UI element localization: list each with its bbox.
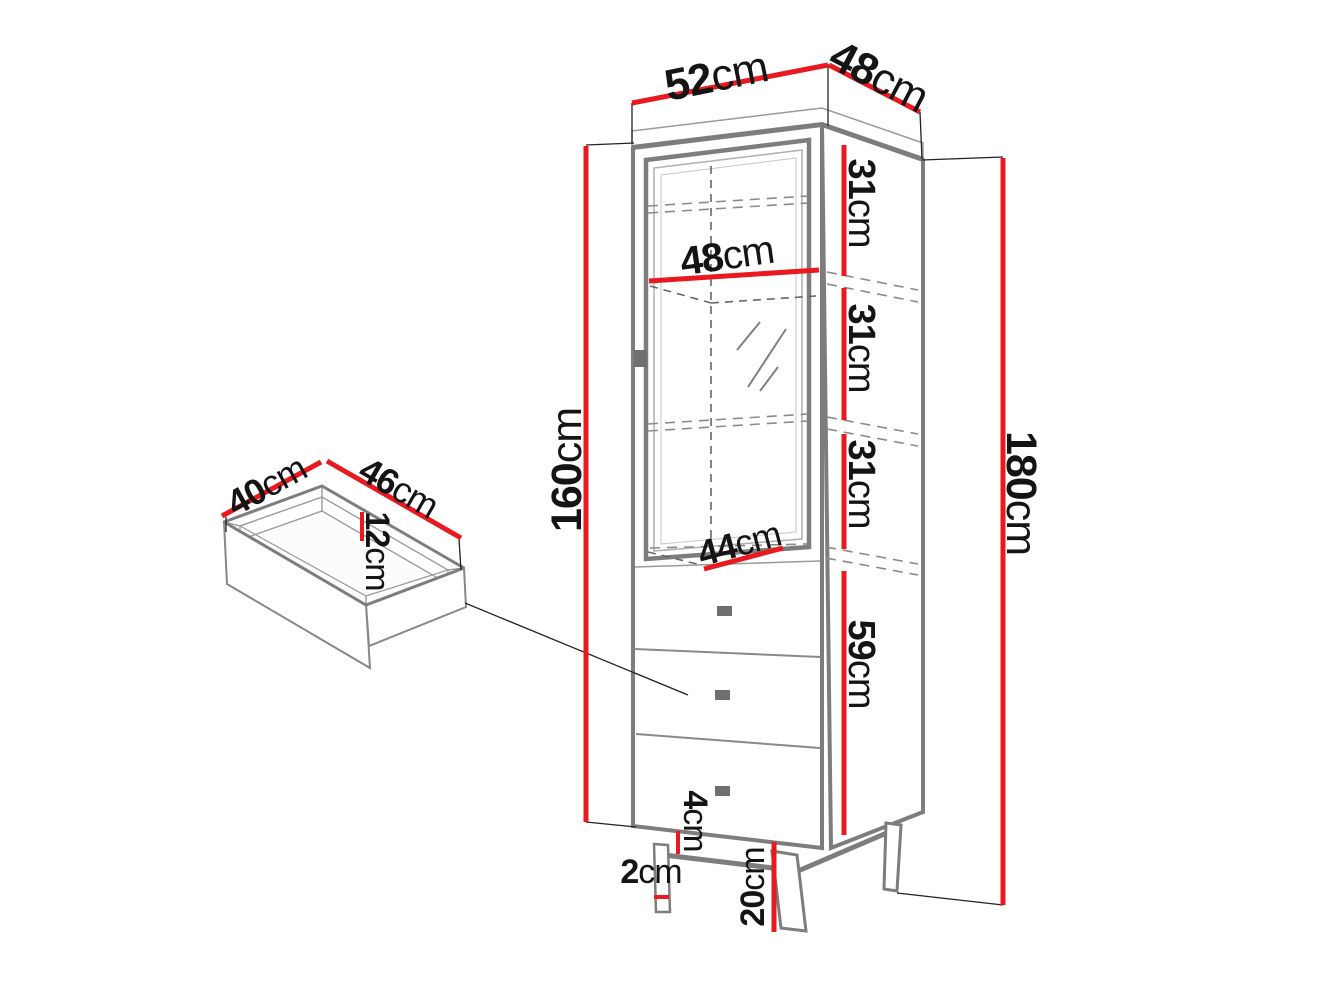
- dim-top-width-label: 52cm: [660, 42, 771, 111]
- ext-body-height-bottom: [586, 822, 636, 827]
- dimension-diagram: 52cm 48cm 31cm 31cm 31cm 59cm 160cm 180c…: [0, 0, 1322, 991]
- rear-right-leg: [884, 823, 901, 891]
- ext-body-height-top: [586, 143, 634, 145]
- dim-apron-height-label: 4cm: [676, 790, 714, 851]
- dim-leg-height-label: 20cm: [734, 847, 772, 926]
- diagram-canvas: 52cm 48cm 31cm 31cm 31cm 59cm 160cm 180c…: [0, 0, 1322, 991]
- drawer-handle-3[interactable]: [715, 786, 730, 796]
- glass-door: [634, 140, 809, 559]
- ext-total-height-bottom: [897, 893, 1003, 905]
- door-frame-outer: [646, 140, 809, 559]
- dim-drawer-height-label: 12cm: [358, 511, 396, 590]
- dim-body-height-label: 160cm: [543, 408, 591, 532]
- dim-shelf-2-label: 31cm: [840, 304, 882, 393]
- dim-shelf-3-label: 31cm: [840, 440, 882, 529]
- front-right-leg: [772, 851, 806, 931]
- ext-total-height-top: [922, 157, 1003, 160]
- dim-top-depth-label: 48cm: [822, 30, 937, 121]
- dim-leg-width-label: 2cm: [620, 853, 681, 891]
- dim-drawer-depth-label: 40cm: [219, 447, 312, 524]
- dim-drawer-section-label: 59cm: [840, 620, 882, 709]
- drawer-handle-2[interactable]: [715, 690, 730, 700]
- door-handle[interactable]: [634, 350, 647, 367]
- dim-shelf-1-label: 31cm: [840, 159, 882, 248]
- dim-total-height-label: 180cm: [997, 431, 1045, 555]
- drawer-handle-1[interactable]: [717, 606, 732, 616]
